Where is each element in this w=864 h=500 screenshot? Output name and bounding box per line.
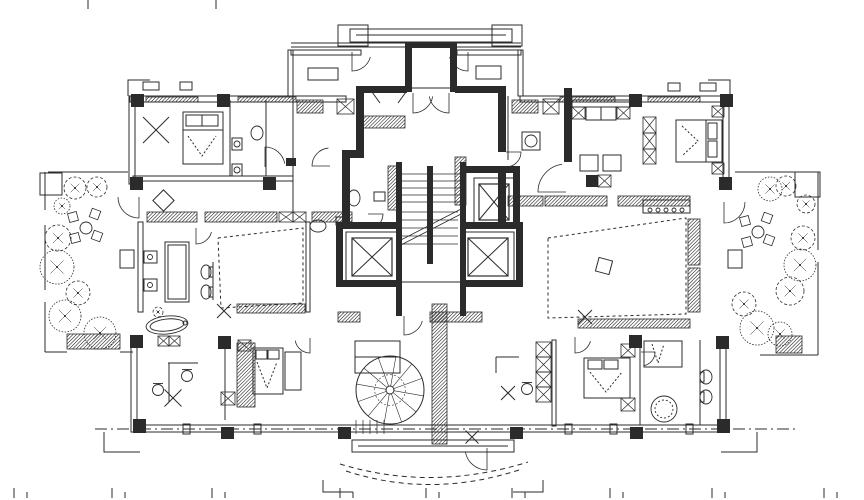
structural-column xyxy=(629,335,642,348)
structural-wall xyxy=(336,222,343,287)
wall-or-fixture-rect xyxy=(168,245,186,299)
door-swing xyxy=(429,93,449,113)
fixture-circle xyxy=(525,135,537,147)
fixture-circle xyxy=(234,141,240,147)
tree-symbol xyxy=(54,198,70,214)
wall-or-fixture-rect xyxy=(202,115,218,126)
outline-polyline xyxy=(323,480,353,492)
wall-or-fixture-rect xyxy=(291,50,361,55)
structural-wall xyxy=(513,166,520,228)
wall-or-fixture-rect xyxy=(476,66,501,79)
structural-wall xyxy=(286,158,296,166)
wall-or-fixture-rect xyxy=(708,123,717,139)
fixture-circle xyxy=(656,208,660,212)
hatched-wall xyxy=(147,212,197,222)
structural-column xyxy=(130,177,143,190)
wall-or-fixture-rect xyxy=(308,68,338,80)
door-swing xyxy=(295,338,310,353)
door-swing xyxy=(465,448,487,470)
structural-wall xyxy=(455,86,503,93)
door-swing xyxy=(641,352,655,366)
wall-or-fixture-rect xyxy=(288,50,293,96)
chair xyxy=(153,385,164,396)
tree-symbol xyxy=(776,176,796,196)
hatched-wall xyxy=(432,304,447,444)
wall-or-fixture-rect xyxy=(232,164,242,176)
outline-polyline xyxy=(104,432,140,452)
chair xyxy=(182,371,193,382)
structural-wall xyxy=(396,282,402,316)
fixture-circle xyxy=(148,255,153,260)
wall-or-fixture-rect xyxy=(584,358,630,398)
wall-or-fixture-rect xyxy=(728,250,742,268)
wall-or-fixture-rect xyxy=(129,96,135,184)
door-swing xyxy=(575,337,590,353)
fixture-circle xyxy=(664,208,668,212)
wall-or-fixture-rect xyxy=(120,250,134,268)
wall-or-fixture-rect xyxy=(180,82,192,90)
structural-wall xyxy=(461,280,523,287)
tree-symbol xyxy=(153,307,163,317)
wall-or-fixture-rect xyxy=(232,138,242,150)
fixture-ellipse xyxy=(149,317,184,332)
tree-symbol xyxy=(66,281,90,305)
wall-or-fixture-rect xyxy=(601,107,616,120)
wall-or-fixture-rect xyxy=(40,173,62,195)
door-swing xyxy=(413,93,433,113)
tree-symbol xyxy=(64,177,86,199)
door-swing xyxy=(118,197,139,218)
door-swing xyxy=(265,147,285,167)
structural-wall xyxy=(405,45,412,92)
structural-wall xyxy=(342,150,364,158)
structural-column xyxy=(263,177,276,190)
hatched-wall xyxy=(578,319,690,328)
outdoor-table-set xyxy=(67,208,102,243)
fixture-ellipse xyxy=(145,314,189,336)
wall-or-fixture-rect xyxy=(668,83,680,91)
structural-column xyxy=(131,94,144,107)
wall-or-fixture-rect xyxy=(552,340,556,426)
outline-polyline xyxy=(188,136,216,156)
structural-column xyxy=(217,94,230,107)
wall-or-fixture-rect xyxy=(183,112,223,164)
door-swing xyxy=(538,164,566,192)
structural-wall xyxy=(356,86,364,156)
structural-column xyxy=(716,336,729,349)
structural-wall xyxy=(564,88,572,162)
tree-symbol xyxy=(45,225,71,251)
outline-polyline xyxy=(590,372,622,392)
fixture-circle xyxy=(648,208,652,212)
outline-polyline xyxy=(548,218,686,318)
structural-column xyxy=(338,427,351,439)
columns xyxy=(130,94,733,439)
outline-polyline xyxy=(218,228,303,308)
structural-wall xyxy=(498,86,506,152)
floorplan-document xyxy=(0,0,864,500)
fixture-circle xyxy=(680,208,684,212)
walls-structural xyxy=(286,42,598,316)
structural-wall xyxy=(405,42,457,48)
wall-or-fixture-rect xyxy=(256,350,267,359)
walls-hatched xyxy=(67,97,802,444)
structural-column xyxy=(629,94,642,107)
tree-symbol xyxy=(776,277,804,305)
wall-line xyxy=(398,92,406,103)
structural-wall xyxy=(338,222,398,229)
structural-column xyxy=(221,427,234,439)
tree-symbol xyxy=(791,226,815,250)
tree-symbol xyxy=(84,317,116,349)
door-swing xyxy=(724,202,745,223)
wall-or-fixture-rect xyxy=(580,155,598,171)
spiral-stair xyxy=(356,356,424,424)
outline-polyline xyxy=(682,126,698,156)
outline-polyline xyxy=(513,480,543,492)
hatched-wall xyxy=(545,196,607,206)
wall-or-fixture-rect xyxy=(595,257,612,274)
wall-or-fixture-rect xyxy=(708,141,717,157)
structural-column xyxy=(720,94,733,107)
outline-polyline xyxy=(652,344,664,363)
wall-or-fixture-rect xyxy=(268,350,279,359)
wall-or-fixture-rect xyxy=(604,360,618,369)
structural-wall xyxy=(450,45,457,92)
wall-or-fixture-rect xyxy=(457,50,521,55)
door-swing xyxy=(312,148,330,166)
structural-column xyxy=(510,427,523,439)
tree-symbol xyxy=(740,311,774,345)
wall-or-fixture-rect xyxy=(153,190,174,211)
structural-wall xyxy=(586,175,598,187)
structural-wall xyxy=(460,282,466,316)
structural-column xyxy=(133,419,146,433)
wall-or-fixture-rect xyxy=(586,107,601,120)
fixture-ellipse xyxy=(700,370,712,384)
wall-or-fixture-rect xyxy=(374,192,385,201)
structural-wall xyxy=(498,166,506,228)
fixture-circle xyxy=(655,400,673,418)
tree-symbol xyxy=(758,177,782,201)
fixture-ellipse xyxy=(251,126,263,140)
fixture-ellipse xyxy=(700,390,712,404)
wall-or-fixture-rect xyxy=(138,222,143,312)
structural-column xyxy=(130,335,143,348)
structural-wall xyxy=(362,86,407,93)
outline-polyline xyxy=(257,362,277,388)
structural-wall xyxy=(462,166,520,173)
fixture-circle xyxy=(672,208,676,212)
outdoor-table-set xyxy=(739,212,774,247)
wall-line xyxy=(372,92,380,103)
structural-column xyxy=(218,336,231,349)
wall-or-fixture-rect xyxy=(603,155,621,171)
wall-or-fixture-rect xyxy=(186,115,202,126)
floor-plan xyxy=(0,0,864,500)
wall-or-fixture-rect xyxy=(144,279,157,291)
wall-or-fixture-rect xyxy=(306,222,310,312)
wall-or-fixture-rect xyxy=(795,172,820,197)
wall-or-fixture-rect xyxy=(165,242,189,302)
wall-or-fixture-rect xyxy=(588,360,602,369)
fixture-circle xyxy=(148,283,153,288)
fixture-circle xyxy=(234,167,240,173)
wall-or-fixture-rect xyxy=(720,338,726,424)
wall-or-fixture-rect xyxy=(700,83,716,91)
structural-column xyxy=(630,427,643,439)
dimension-ticks xyxy=(14,488,837,498)
tree-symbol xyxy=(784,249,816,281)
tree-symbol xyxy=(797,195,815,213)
wall-or-fixture-rect xyxy=(143,82,159,90)
wall-or-fixture-rect xyxy=(285,352,301,390)
wall-or-fixture-rect xyxy=(144,251,157,263)
tree-symbol xyxy=(768,322,792,346)
chair xyxy=(522,384,533,395)
door-swing xyxy=(196,228,211,244)
structural-wall xyxy=(336,280,398,287)
outline-polyline xyxy=(721,432,757,452)
balcony-arc xyxy=(346,469,522,485)
tree-symbol xyxy=(732,292,756,316)
structural-wall xyxy=(516,222,523,287)
wall-or-fixture-rect xyxy=(518,50,523,96)
structural-column xyxy=(719,177,732,190)
tree-symbol xyxy=(49,300,81,332)
door-swing xyxy=(404,316,422,335)
outline-polyline xyxy=(708,80,730,96)
structural-column xyxy=(717,419,730,433)
tree-symbol xyxy=(87,177,107,197)
